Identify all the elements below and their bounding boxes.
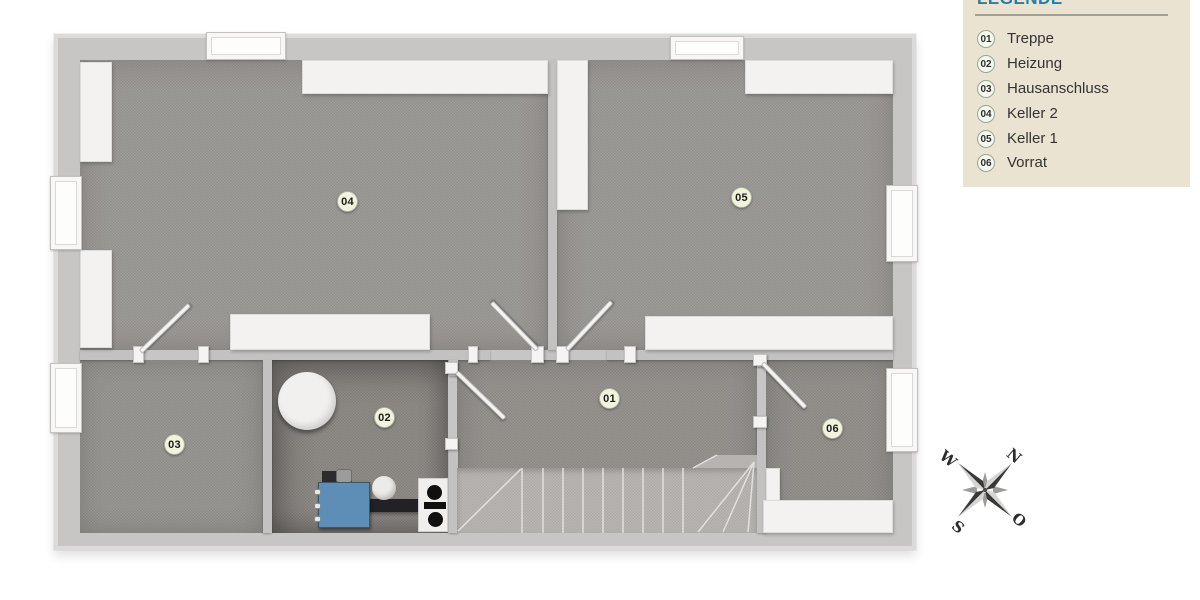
room-number-badge: 02 [374, 407, 395, 428]
compass-east-label: O [1008, 509, 1030, 531]
legend-item: 06 Vorrat [963, 152, 1190, 174]
wall-panel [80, 250, 112, 348]
legend-title: LEGENDE [977, 0, 1063, 9]
wall-panel [645, 316, 893, 350]
utility-dot [428, 512, 443, 527]
wall-panel [745, 60, 893, 94]
room-number-badge: 04 [337, 191, 358, 212]
window [886, 185, 918, 262]
window [50, 176, 82, 250]
room-keller-2-floor [80, 60, 548, 350]
legend-item-number-badge: 05 [977, 130, 995, 148]
door-jamb [445, 438, 458, 450]
window [206, 32, 286, 60]
compass-south-label: S [948, 517, 968, 538]
legend-item: 05 Keller 1 [963, 128, 1190, 150]
room-number-badge: 05 [731, 187, 752, 208]
legend-item: 04 Keller 2 [963, 103, 1190, 125]
window [886, 368, 918, 452]
wall-panel [302, 60, 548, 94]
door-jamb [753, 416, 767, 428]
utility-dot [427, 485, 442, 500]
room-number-badge: 03 [164, 434, 185, 455]
legend-item-number-badge: 06 [977, 154, 995, 172]
legend-item: 03 Hausanschluss [963, 78, 1190, 100]
window [670, 36, 744, 60]
wall-panel [763, 500, 893, 533]
wall [263, 360, 272, 533]
door-jamb [468, 346, 478, 363]
expansion-vessel [372, 476, 396, 500]
compass-north-label: N [1003, 445, 1025, 467]
wall [80, 350, 140, 360]
boiler-valve [314, 503, 321, 509]
wall [607, 350, 893, 360]
wall-panel [230, 314, 430, 350]
room-number-badge: 06 [822, 418, 843, 439]
door-jamb [198, 346, 209, 363]
boiler [318, 482, 370, 528]
boiler-valve [314, 489, 321, 495]
wall-panel [557, 60, 588, 210]
legend-divider [975, 14, 1168, 16]
legend-item-number-badge: 04 [977, 105, 995, 123]
legend-item-number-badge: 01 [977, 30, 995, 48]
legend-item: 01 Treppe [963, 28, 1190, 50]
legend-item-number-badge: 02 [977, 55, 995, 73]
legend-panel: LEGENDE 01 Treppe 02 Heizung 03 Hausansc… [963, 0, 1190, 187]
legend-item-label: Keller 1 [1007, 130, 1058, 147]
wall [205, 350, 490, 360]
wall-panel [80, 62, 112, 162]
legend-item-label: Treppe [1007, 30, 1054, 47]
legend-item-label: Keller 2 [1007, 105, 1058, 122]
compass-west-label: W [935, 446, 961, 472]
legend-item-label: Hausanschluss [1007, 80, 1109, 97]
legend-item-label: Vorrat [1007, 154, 1047, 171]
floor-plan-page: 01 02 03 04 05 06 LEGENDE 01 Treppe 02 H… [0, 0, 1200, 600]
door-jamb [624, 346, 636, 363]
utility-bar [424, 502, 446, 509]
room-number-badge: 01 [599, 388, 620, 409]
water-tank [278, 372, 336, 430]
boiler-valve [314, 516, 321, 522]
stair-treads [457, 452, 759, 534]
wall [548, 60, 557, 350]
window [50, 363, 82, 433]
legend-item-label: Heizung [1007, 55, 1062, 72]
legend-item: 02 Heizung [963, 53, 1190, 75]
boiler-cylinder [336, 469, 352, 483]
legend-item-number-badge: 03 [977, 80, 995, 98]
compass-rose: N W S O [935, 445, 1045, 555]
